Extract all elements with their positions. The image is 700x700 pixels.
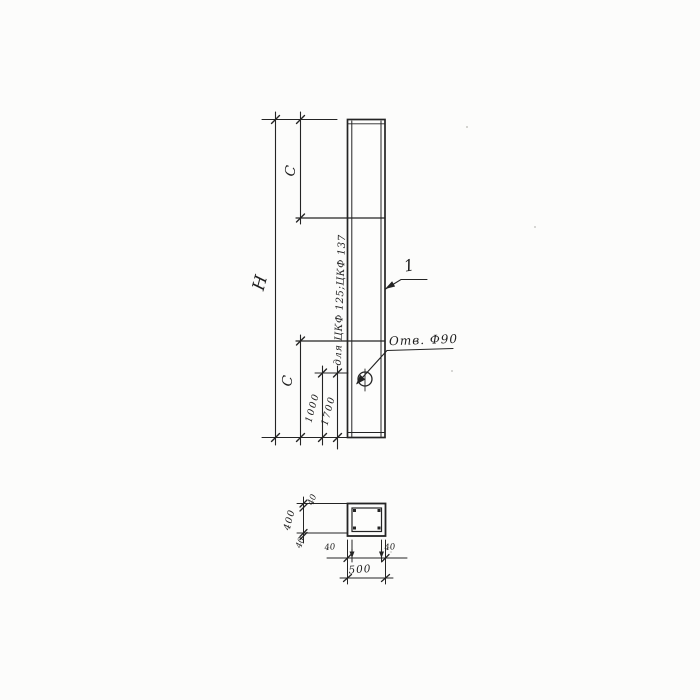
hole-callout-label: Отв. Ф90 xyxy=(389,333,458,347)
drawing-canvas: H C C 1000 1700 для ЦКФ 125;ЦКФ 137 Отв.… xyxy=(0,0,700,700)
section-wall-left-dim-label: 40 xyxy=(324,543,336,553)
drawing-linework xyxy=(0,0,700,700)
section-body xyxy=(348,504,386,537)
section-width-dim-label: 500 xyxy=(348,564,372,576)
item-leader xyxy=(385,280,427,290)
section-wall-right-dim-label: 40 xyxy=(384,543,396,553)
